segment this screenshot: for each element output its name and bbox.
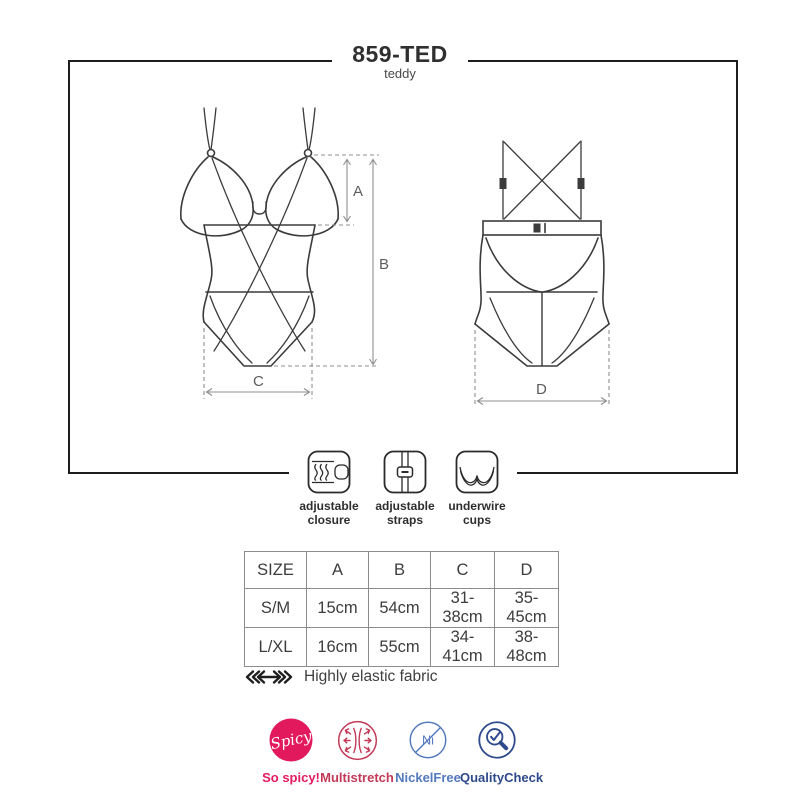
multistretch-icon [337, 720, 378, 761]
dimension-a-label: A [353, 183, 363, 200]
back-view-drawing [475, 141, 609, 366]
back-closure-band [483, 221, 601, 235]
product-spec-sheet: 859-TED teddy [0, 0, 800, 800]
column-header: A [307, 552, 369, 589]
dimension-c-label: C [253, 373, 264, 390]
underwire-cups-icon [455, 450, 499, 494]
table-cell: 16cm [307, 628, 369, 667]
table-row: L/XL 16cm 55cm 34-41cm 38-48cm [245, 628, 559, 667]
badge-nickel-free-label: NickelFree [391, 770, 465, 785]
column-header: D [495, 552, 559, 589]
fabric-note: Highly elastic fabric [244, 668, 438, 686]
badge-spicy: Spicy So spicy! [254, 717, 328, 785]
table-cell: L/XL [245, 628, 307, 667]
badge-quality-check: QualityCheck [460, 717, 534, 785]
table-cell: 38-48cm [495, 628, 559, 667]
product-type: teddy [332, 67, 468, 81]
table-cell: 34-41cm [431, 628, 495, 667]
front-view-drawing [181, 108, 338, 366]
dimension-lines [204, 155, 609, 406]
fabric-note-text: Highly elastic fabric [304, 668, 438, 686]
badge-multistretch: Multistretch [320, 717, 394, 785]
product-code: 859-TED [332, 41, 468, 67]
quality-check-icon [477, 720, 517, 760]
stretch-arrows-icon [244, 669, 294, 685]
column-header: C [431, 552, 495, 589]
badge-multistretch-label: Multistretch [320, 770, 394, 785]
size-table: SIZE A B C D S/M 15cm 54cm 31-38cm 35-45… [244, 551, 559, 667]
hook-closure-icon [307, 450, 351, 494]
table-cell: 31-38cm [431, 589, 495, 628]
strap-slider-left [500, 178, 507, 189]
strap-slider-right [578, 178, 585, 189]
column-header: SIZE [245, 552, 307, 589]
dimension-d-label: D [536, 381, 547, 398]
title-block: 859-TED teddy [332, 38, 468, 88]
badge-spicy-label: So spicy! [254, 770, 328, 785]
strap-ring-right [305, 150, 312, 157]
table-row: S/M 15cm 54cm 31-38cm 35-45cm [245, 589, 559, 628]
table-header-row: SIZE A B C D [245, 552, 559, 589]
table-cell: 55cm [369, 628, 431, 667]
badge-nickel-free: Ni NickelFree [391, 717, 465, 785]
nickel-free-icon: Ni [408, 720, 448, 760]
table-cell: 15cm [307, 589, 369, 628]
spicy-icon: Spicy [269, 718, 313, 762]
column-header: B [369, 552, 431, 589]
table-cell: S/M [245, 589, 307, 628]
strap-slider-icon [383, 450, 427, 494]
badge-quality-check-label: QualityCheck [460, 770, 534, 785]
dimension-b-label: B [379, 256, 389, 273]
feature-label-cups: underwire cups [429, 500, 525, 527]
table-cell: 35-45cm [495, 589, 559, 628]
strap-ring-left [208, 150, 215, 157]
table-cell: 54cm [369, 589, 431, 628]
